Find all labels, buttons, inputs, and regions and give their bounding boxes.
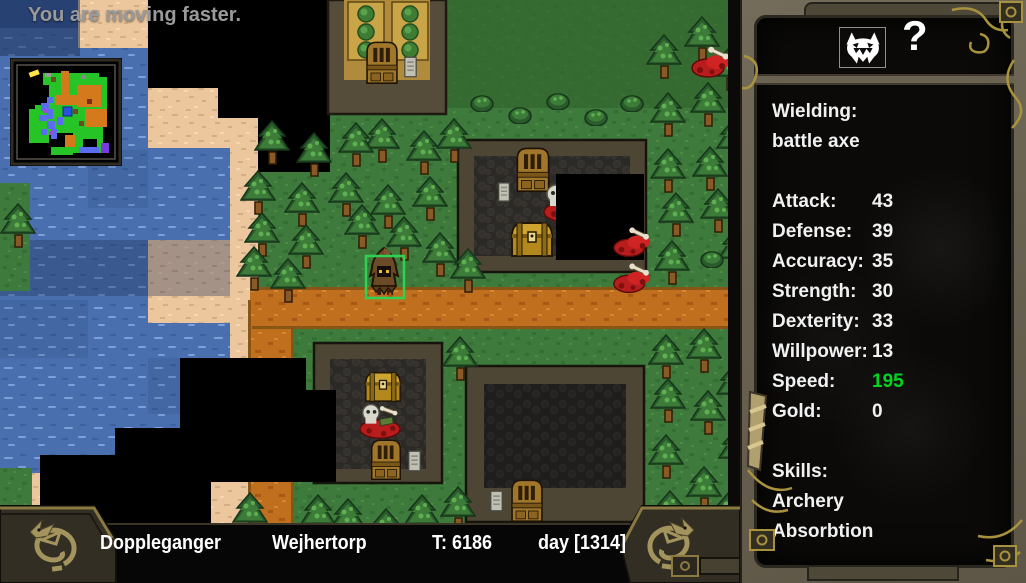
minimap[interactable]: [10, 58, 122, 166]
treasure-chest-icon[interactable]: [512, 223, 552, 256]
character-name: Doppleganger: [100, 530, 221, 556]
sign-plaque-icon[interactable]: [405, 57, 416, 77]
stat-speed: Speed: 195: [772, 367, 1002, 397]
treasure-chest-icon[interactable]: [366, 373, 401, 402]
demon-face-icon: [843, 30, 883, 66]
game-map[interactable]: [0, 0, 740, 583]
day-counter: day [1314]: [538, 530, 626, 556]
panel-divider: [754, 74, 1014, 85]
wielding-value: battle axe: [772, 127, 1002, 157]
skill-item: Archery: [772, 487, 1002, 517]
building-bottom-right: [466, 366, 644, 522]
stat-strength: Strength: 30: [772, 277, 1002, 307]
wielding-label: Wielding:: [772, 97, 1002, 127]
spacer: [772, 427, 1002, 457]
map-edge-shadow: [728, 0, 740, 583]
minimap-player-marker: [63, 107, 72, 116]
stat-defense: Defense: 39: [772, 217, 1002, 247]
sign-plaque-icon[interactable]: [491, 491, 502, 511]
game-window: You are moving faster. Doppleganger Wejh…: [0, 0, 1026, 583]
door-icon[interactable]: [367, 42, 397, 83]
stat-gold: Gold: 0: [772, 397, 1002, 427]
stat-willpower: Willpower: 13: [772, 337, 1002, 367]
stat-attack: Attack: 43: [772, 187, 1002, 217]
door-icon[interactable]: [372, 440, 401, 479]
door-icon[interactable]: [512, 480, 542, 521]
skill-item: Absorbtion: [772, 517, 1002, 547]
door-icon[interactable]: [517, 148, 548, 191]
sign-plaque-icon[interactable]: [499, 183, 510, 201]
sign-plaque-icon[interactable]: [409, 451, 420, 471]
building-tavern: [328, 0, 446, 114]
portrait-button[interactable]: [839, 27, 886, 68]
stats-list: Wielding: battle axe Attack: 43 Defense:…: [772, 97, 1002, 547]
message-log-line: You are moving faster.: [28, 4, 241, 27]
stat-dexterity: Dexterity: 33: [772, 307, 1002, 337]
stat-accuracy: Accuracy: 35: [772, 247, 1002, 277]
location-name: Wejhertorp: [272, 530, 367, 556]
spacer: [772, 157, 1002, 187]
turn-counter: T: 6186: [432, 530, 492, 556]
help-icon[interactable]: ?: [902, 12, 928, 60]
skills-label: Skills:: [772, 457, 1002, 487]
character-panel: ? Wielding: battle axe Attack: 43 Defens…: [740, 0, 1026, 583]
